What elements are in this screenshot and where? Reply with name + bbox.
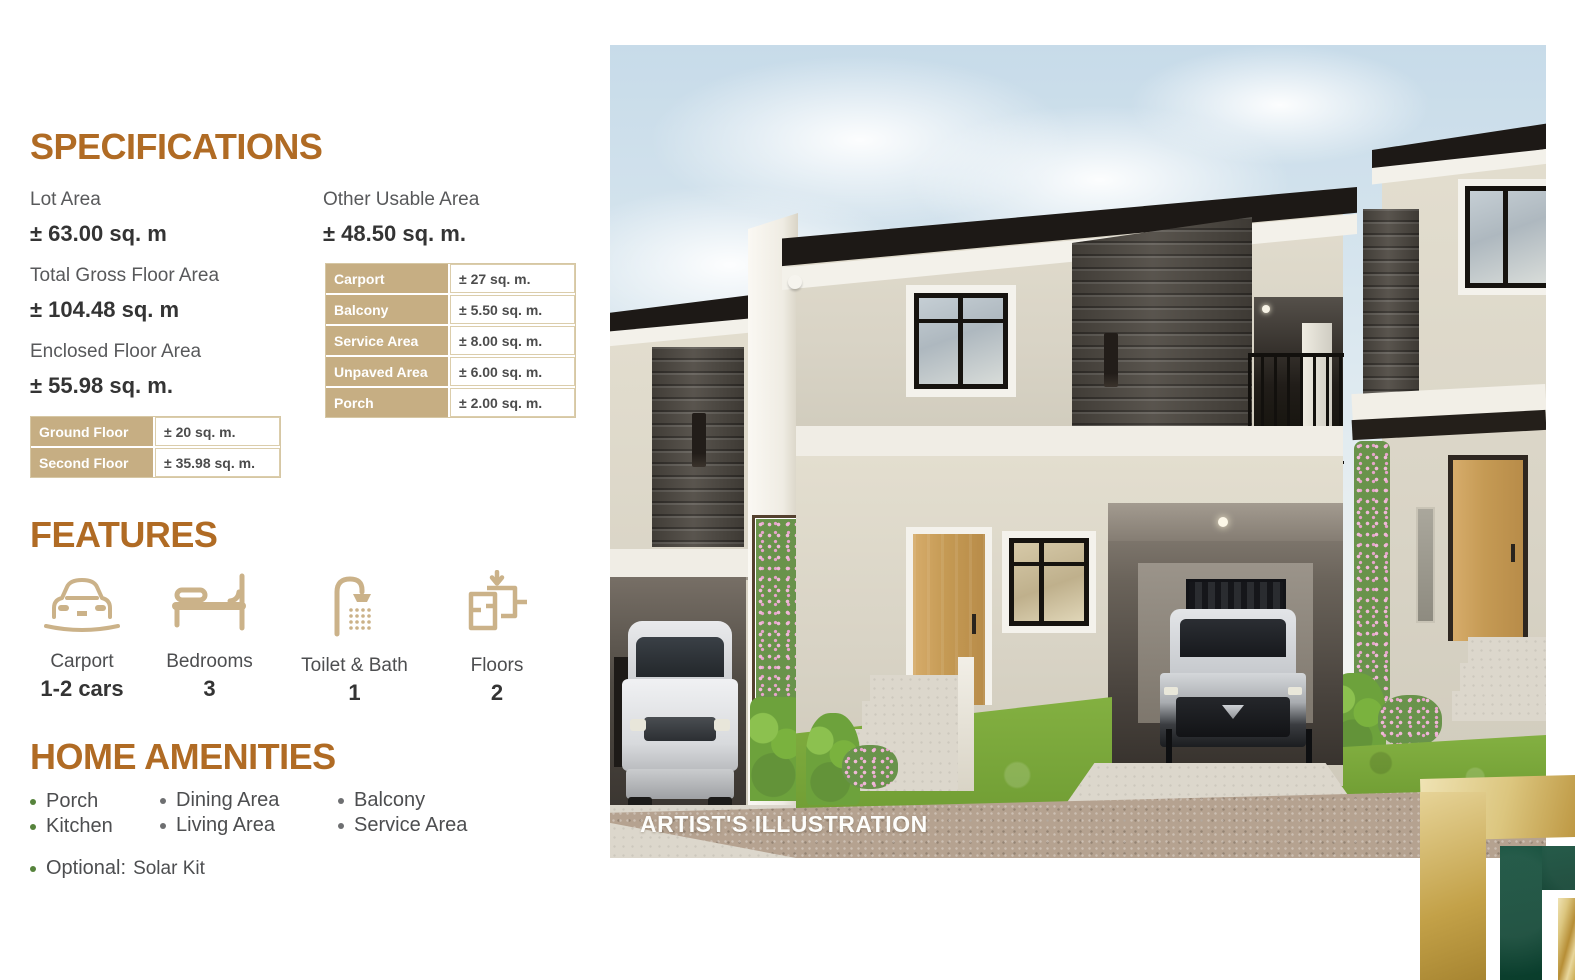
enclosed-area-table: Ground Floor ± 20 sq. m. Second Floor ± … <box>30 416 281 478</box>
bullet-icon <box>160 798 166 804</box>
right-unit-step <box>1468 637 1546 663</box>
right-unit-slit-window <box>1416 507 1435 623</box>
door-handle <box>1511 544 1515 562</box>
door-step <box>870 675 964 701</box>
window-mullion <box>1503 191 1508 283</box>
vine-planter <box>1354 441 1390 703</box>
bullet-icon <box>338 823 344 829</box>
amenity-optional: Optional: Solar Kit <box>30 856 205 881</box>
green-frame-left <box>1500 846 1542 980</box>
amenities-column-1: Porch Kitchen <box>30 789 113 839</box>
feature-value: 1-2 cars <box>40 676 123 702</box>
suv-headlight <box>630 719 646 731</box>
other-usable-area-value: ± 48.50 sq. m. <box>323 221 466 247</box>
cloud <box>1130 45 1430 165</box>
amenity-item: Balcony <box>338 788 467 813</box>
balcony-downlight <box>1262 305 1270 313</box>
gutter-hook <box>788 275 802 289</box>
step-stringer-wall <box>958 657 974 791</box>
suv-windshield <box>636 637 724 677</box>
feature-value: 3 <box>203 676 215 702</box>
table-row-header: Balcony <box>326 295 448 324</box>
specifications-title: SPECIFICATIONS <box>30 126 322 168</box>
window-mullion <box>958 298 963 384</box>
right-unit-step <box>1460 663 1546 691</box>
shower-icon <box>313 570 397 645</box>
usable-area-table: Carport ± 27 sq. m. Balcony ± 5.50 sq. m… <box>325 263 576 418</box>
bullet-icon <box>30 866 36 872</box>
amenity-label: Balcony <box>354 789 425 812</box>
feature-value: 1 <box>348 680 360 706</box>
table-row-value: ± 8.00 sq. m. <box>450 326 575 355</box>
table-row-value: ± 27 sq. m. <box>450 264 575 293</box>
window-pane <box>1470 191 1546 283</box>
table-row-value: ± 6.00 sq. m. <box>450 357 575 386</box>
truck-headlight <box>1164 687 1178 695</box>
table-row-header: Carport <box>326 264 448 293</box>
feature-bedrooms: Bedrooms 3 <box>142 570 277 702</box>
amenity-item: Dining Area <box>160 788 279 813</box>
bullet-icon <box>338 798 344 804</box>
amenities-title: HOME AMENITIES <box>30 736 336 778</box>
wall-sconce <box>692 413 706 467</box>
brochure-page: SPECIFICATIONS Lot Area ± 63.00 sq. m To… <box>0 0 1575 980</box>
car-icon <box>40 570 124 641</box>
table-row-value: ± 5.50 sq. m. <box>450 295 575 324</box>
main-floor-slab <box>796 426 1343 456</box>
feature-floors: Floors 2 <box>432 570 562 706</box>
gross-floor-area-label: Total Gross Floor Area <box>30 265 219 287</box>
bullet-icon <box>160 823 166 829</box>
feature-label: Carport <box>50 651 113 673</box>
flower-bush <box>1378 695 1442 747</box>
carport-downlight <box>1218 517 1228 527</box>
gold-frame-left <box>1420 792 1486 980</box>
amenity-item: Living Area <box>160 813 279 838</box>
pickup-truck <box>1160 579 1306 779</box>
specifications-section: SPECIFICATIONS <box>30 126 322 168</box>
vertical-garden <box>756 519 796 713</box>
table-row-header: Second Floor <box>31 448 153 477</box>
main-carport <box>1108 503 1343 765</box>
optional-value: Solar Kit <box>133 858 205 880</box>
door-step <box>862 701 964 729</box>
enclosed-floor-area-label: Enclosed Floor Area <box>30 341 201 363</box>
house-render: ARTIST'S ILLUSTRATION <box>610 45 1546 858</box>
amenity-item: Porch <box>30 789 113 814</box>
bullet-icon <box>30 824 36 830</box>
floor-plan-icon <box>457 570 537 645</box>
feature-label: Toilet & Bath <box>301 655 408 677</box>
amenities-column-2: Dining Area Living Area <box>160 788 279 838</box>
wall-sconce <box>1104 333 1118 387</box>
features-row: Carport 1-2 cars Bedrooms 3 <box>22 570 562 706</box>
table-row-value: ± 35.98 sq. m. <box>155 448 280 477</box>
feature-value: 2 <box>491 680 503 706</box>
window-transom <box>919 319 1003 323</box>
enclosed-floor-area-value: ± 55.98 sq. m. <box>30 373 173 399</box>
white-suv <box>622 621 738 811</box>
main-upper-window-frame <box>914 293 1008 389</box>
table-row-value: ± 20 sq. m. <box>155 417 280 446</box>
suv-grille <box>644 717 716 741</box>
right-unit-door <box>1453 460 1523 641</box>
right-unit-window-surround <box>1458 179 1546 295</box>
gross-floor-area-value: ± 104.48 sq. m <box>30 297 179 323</box>
window-mullion <box>1039 543 1044 621</box>
amenities-column-3: Balcony Service Area <box>338 788 467 838</box>
bed-icon <box>164 570 256 641</box>
lot-area-value: ± 63.00 sq. m <box>30 221 167 247</box>
inner-gold-frame-left <box>1558 898 1575 980</box>
table-row-header: Unpaved Area <box>326 357 448 386</box>
optional-label: Optional: <box>46 857 126 880</box>
window-transom <box>1014 562 1084 566</box>
truck-headlight <box>1288 687 1302 695</box>
suv-bumper <box>626 769 734 799</box>
right-unit-door-frame <box>1448 455 1528 641</box>
main-ground-window-surround <box>1002 531 1096 633</box>
bullet-icon <box>30 799 36 805</box>
artists-illustration-caption: ARTIST'S ILLUSTRATION <box>640 811 928 838</box>
right-unit-step <box>1452 691 1546 721</box>
main-ground-window-frame <box>1009 538 1089 626</box>
amenity-label: Porch <box>46 790 98 813</box>
amenity-item: Service Area <box>338 813 467 838</box>
lot-area-label: Lot Area <box>30 189 101 211</box>
amenity-label: Dining Area <box>176 789 279 812</box>
main-unit-wood-slats <box>1072 217 1252 459</box>
table-row-header: Service Area <box>326 326 448 355</box>
feature-label: Bedrooms <box>166 651 253 673</box>
amenity-label: Service Area <box>354 814 467 837</box>
table-row-header: Porch <box>326 388 448 417</box>
window-pane <box>1014 543 1084 621</box>
left-unit-carport <box>610 577 746 813</box>
right-unit-wood-slats-upper <box>1363 209 1419 404</box>
feature-label: Floors <box>471 655 524 677</box>
main-upper-window-surround <box>906 285 1016 397</box>
feature-carport: Carport 1-2 cars <box>22 570 142 702</box>
amenity-label: Kitchen <box>46 815 113 838</box>
features-title: FEATURES <box>30 514 217 556</box>
feature-toilet-bath: Toilet & Bath 1 <box>277 570 432 706</box>
table-row-value: ± 2.00 sq. m. <box>450 388 575 417</box>
amenity-label: Living Area <box>176 814 275 837</box>
amenity-item: Kitchen <box>30 814 113 839</box>
truck-windshield <box>1180 619 1286 657</box>
hedge <box>750 697 802 801</box>
left-unit-floor-slab <box>610 549 755 577</box>
right-unit-window-frame <box>1465 186 1546 288</box>
table-row-header: Ground Floor <box>31 417 153 446</box>
other-usable-area-label: Other Usable Area <box>323 189 479 211</box>
flower-bed <box>842 745 898 789</box>
suv-headlight <box>714 719 730 731</box>
vertical-garden-frame <box>752 515 800 717</box>
